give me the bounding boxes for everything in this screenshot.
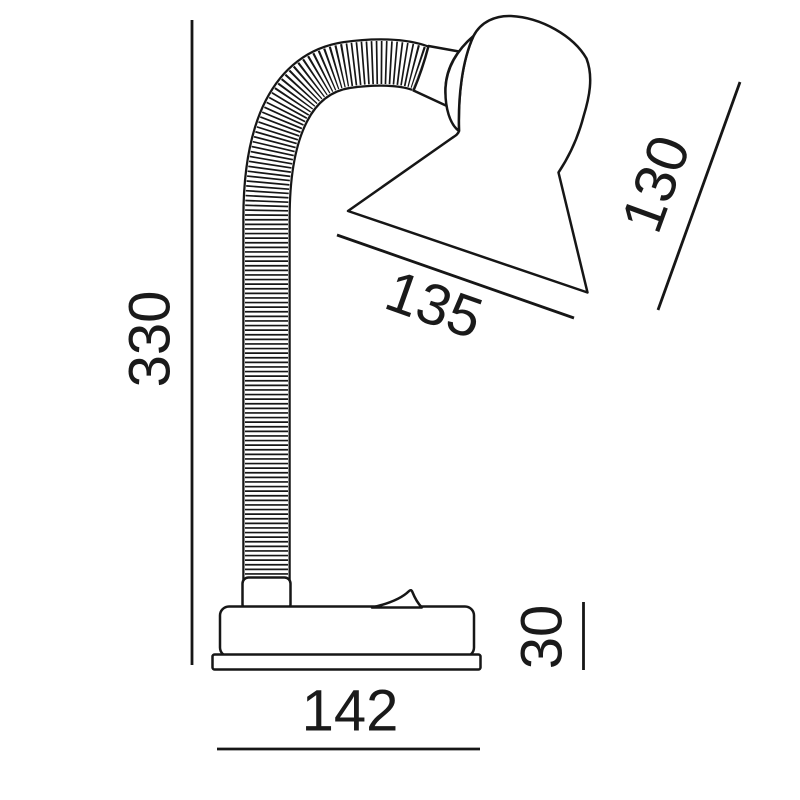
- desk-lamp: [213, 16, 591, 670]
- dimension-label-shade-opening: 135: [378, 258, 491, 352]
- dimension-overall-height: 330: [118, 20, 193, 665]
- drawing-canvas: 330 130 135 142 30: [0, 0, 800, 800]
- base-body: [220, 607, 474, 657]
- base-plate: [213, 655, 481, 670]
- lamp-technical-drawing: 330 130 135 142 30: [0, 0, 800, 800]
- dimension-label-base-width: 142: [302, 679, 399, 744]
- dimension-shade-length: 130: [609, 82, 740, 310]
- dimension-base-width: 142: [217, 679, 480, 750]
- dimension-label-base-height: 30: [510, 605, 575, 670]
- dimension-base-height: 30: [510, 602, 584, 670]
- power-switch: [372, 590, 422, 607]
- dimension-label-overall-height: 330: [118, 291, 183, 388]
